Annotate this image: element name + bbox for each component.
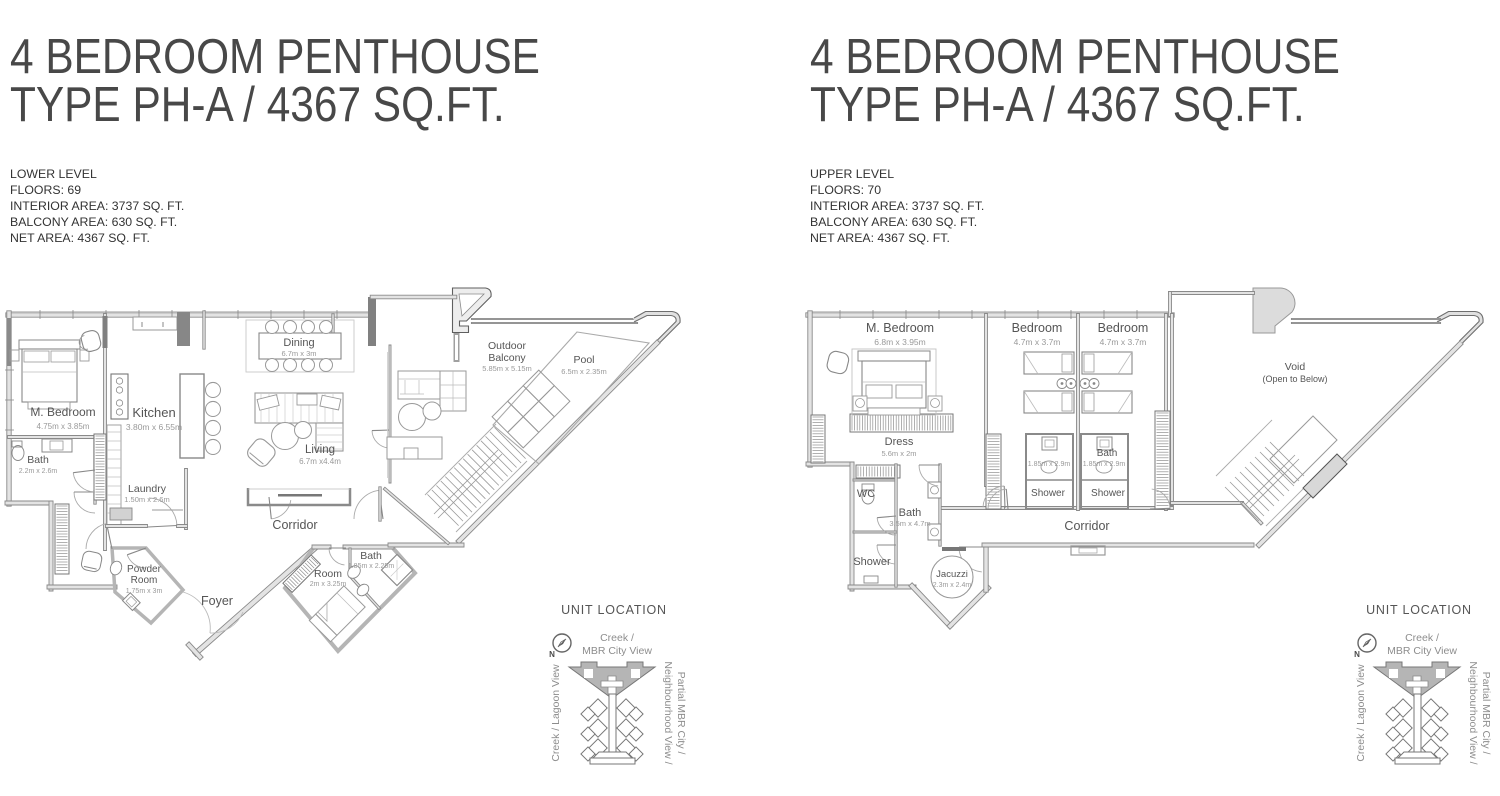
svg-text:Powder: Powder bbox=[127, 564, 162, 575]
svg-text:Partial MBR City /: Partial MBR City / bbox=[675, 672, 687, 755]
svg-text:Corridor: Corridor bbox=[1064, 519, 1109, 533]
svg-text:Pool: Pool bbox=[573, 354, 594, 366]
svg-text:5.6m x 2m: 5.6m x 2m bbox=[881, 449, 916, 458]
svg-text:1.50m x 2.6m: 1.50m x 2.6m bbox=[124, 495, 169, 504]
svg-text:1.85m x 2.9m: 1.85m x 2.9m bbox=[1083, 461, 1126, 468]
svg-text:Kitchen: Kitchen bbox=[132, 405, 175, 420]
svg-text:Creek / Lagoon View: Creek / Lagoon View bbox=[550, 664, 562, 762]
svg-text:N: N bbox=[549, 650, 555, 659]
svg-text:5.85m x 5.15m: 5.85m x 5.15m bbox=[482, 364, 532, 373]
svg-text:(Open to Below): (Open to Below) bbox=[1262, 374, 1327, 384]
svg-text:Foyer: Foyer bbox=[201, 594, 233, 608]
svg-text:Dining: Dining bbox=[283, 337, 314, 349]
svg-text:UNIT LOCATION: UNIT LOCATION bbox=[1366, 603, 1472, 617]
svg-text:Dress: Dress bbox=[885, 436, 914, 448]
svg-text:Partial MBR City /: Partial MBR City / bbox=[1480, 672, 1492, 755]
svg-text:2m x 3.25m: 2m x 3.25m bbox=[310, 581, 347, 588]
svg-text:Room: Room bbox=[314, 568, 342, 580]
svg-text:Living: Living bbox=[305, 444, 335, 456]
svg-text:Shower: Shower bbox=[853, 556, 891, 568]
svg-text:Bedroom: Bedroom bbox=[1012, 321, 1063, 335]
svg-text:6.7m x 3m: 6.7m x 3m bbox=[281, 349, 316, 358]
svg-text:M. Bedroom: M. Bedroom bbox=[866, 321, 934, 335]
svg-text:Neighbourhood View /: Neighbourhood View / bbox=[1467, 661, 1479, 764]
svg-text:Shower: Shower bbox=[1091, 488, 1126, 499]
svg-text:WC: WC bbox=[857, 488, 875, 500]
svg-text:Outdoor: Outdoor bbox=[488, 340, 526, 352]
svg-text:UNIT LOCATION: UNIT LOCATION bbox=[561, 603, 667, 617]
svg-text:Creek /: Creek / bbox=[600, 632, 634, 644]
svg-text:4.75m x 3.85m: 4.75m x 3.85m bbox=[37, 422, 90, 431]
svg-text:Bath: Bath bbox=[1097, 448, 1118, 459]
svg-text:Corridor: Corridor bbox=[272, 518, 317, 532]
svg-text:Balcony: Balcony bbox=[488, 352, 526, 364]
svg-text:6.8m x 3.95m: 6.8m x 3.95m bbox=[874, 337, 926, 347]
svg-text:Bedroom: Bedroom bbox=[1098, 321, 1149, 335]
svg-text:1.85m x 2.25m: 1.85m x 2.25m bbox=[348, 563, 394, 570]
svg-text:N: N bbox=[1354, 650, 1360, 659]
svg-text:6.7m x4.4m: 6.7m x4.4m bbox=[299, 457, 341, 466]
svg-text:3.80m x 6.55m: 3.80m x 6.55m bbox=[126, 422, 182, 432]
svg-text:2.2m x 2.6m: 2.2m x 2.6m bbox=[19, 468, 58, 475]
svg-text:M. Bedroom: M. Bedroom bbox=[30, 405, 95, 419]
svg-text:4.7m x 3.7m: 4.7m x 3.7m bbox=[1100, 337, 1147, 347]
svg-text:Creek / Lagoon View: Creek / Lagoon View bbox=[1355, 664, 1367, 762]
svg-text:Laundry: Laundry bbox=[128, 483, 167, 495]
svg-text:Creek /: Creek / bbox=[1405, 632, 1439, 644]
svg-text:MBR City View: MBR City View bbox=[582, 645, 652, 657]
svg-text:Bath: Bath bbox=[899, 507, 922, 519]
svg-text:2.3m x 2.4m: 2.3m x 2.4m bbox=[933, 582, 972, 589]
svg-text:Room: Room bbox=[131, 575, 158, 586]
svg-text:MBR City View: MBR City View bbox=[1387, 645, 1457, 657]
svg-text:1.75m x 3m: 1.75m x 3m bbox=[126, 588, 163, 595]
svg-text:1.85m x 2.9m: 1.85m x 2.9m bbox=[1028, 461, 1071, 468]
svg-text:6.5m x 2.35m: 6.5m x 2.35m bbox=[561, 367, 606, 376]
svg-text:Bath: Bath bbox=[27, 454, 49, 466]
svg-text:Void: Void bbox=[1285, 361, 1306, 373]
svg-text:Shower: Shower bbox=[1031, 488, 1066, 499]
svg-text:Neighbourhood View /: Neighbourhood View / bbox=[662, 661, 674, 764]
svg-text:3.5m x 4.7m: 3.5m x 4.7m bbox=[889, 519, 930, 528]
svg-text:Jacuzzi: Jacuzzi bbox=[936, 569, 968, 580]
svg-text:Bath: Bath bbox=[360, 550, 382, 562]
svg-text:4.7m x 3.7m: 4.7m x 3.7m bbox=[1014, 337, 1061, 347]
